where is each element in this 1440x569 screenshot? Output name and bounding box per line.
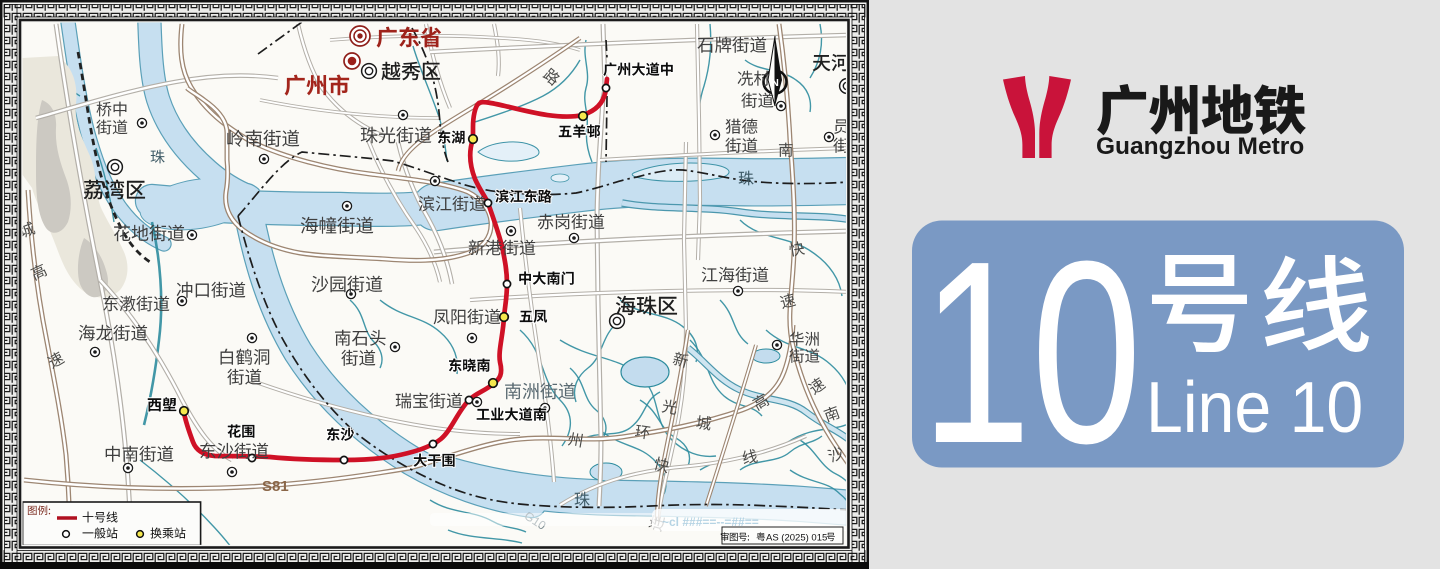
svg-text:Guangzhou Metro: Guangzhou Metro [1096, 133, 1304, 160]
svg-text:AS (2025) 015: AS (2025) 015 [766, 533, 827, 544]
svg-text:Line 10: Line 10 [1146, 366, 1363, 447]
svg-text:S81: S81 [262, 478, 289, 495]
svg-text:N: N [771, 77, 779, 89]
svg-text:10: 10 [921, 208, 1142, 498]
